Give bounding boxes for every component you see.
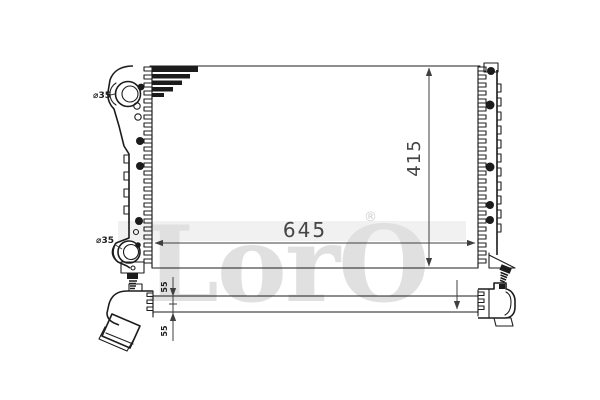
outlet-flange-bolt — [135, 242, 141, 248]
side-left-coupling — [147, 293, 153, 314]
side-right-coupling — [478, 292, 484, 313]
inlet-port — [110, 82, 144, 107]
bolt — [486, 201, 494, 209]
dim-core-height-label: 415 — [404, 139, 425, 176]
dim-inlet-diameter: ⌀35 — [93, 91, 115, 101]
bolt — [135, 217, 143, 225]
mount-hole — [135, 114, 141, 120]
bolt — [136, 137, 144, 145]
dim-core-width-label: 645 — [283, 218, 327, 242]
right-tank — [478, 63, 515, 283]
fin-cutaway-hatch — [152, 66, 198, 97]
bolt — [487, 67, 495, 75]
pipe-offset-bottom-label: 55 — [160, 325, 169, 337]
bolt — [486, 163, 495, 172]
left-tank — [108, 66, 152, 289]
bolt — [486, 101, 495, 110]
side-end-cap — [478, 283, 515, 326]
registered-mark: ® — [364, 210, 377, 225]
radiator-drawing: LorO ® — [0, 0, 600, 400]
inlet-diameter-label: ⌀35 — [93, 91, 111, 101]
bolt — [136, 162, 144, 170]
drawing-canvas: LorO ® — [0, 0, 600, 400]
right-drain-plug — [489, 253, 515, 283]
inlet-flange-bolt — [138, 84, 145, 91]
bolt — [486, 216, 494, 224]
pipe-offset-top-label: 55 — [160, 281, 169, 293]
outlet-diameter-label: ⌀35 — [96, 236, 114, 246]
right-tank-serration — [478, 67, 486, 267]
